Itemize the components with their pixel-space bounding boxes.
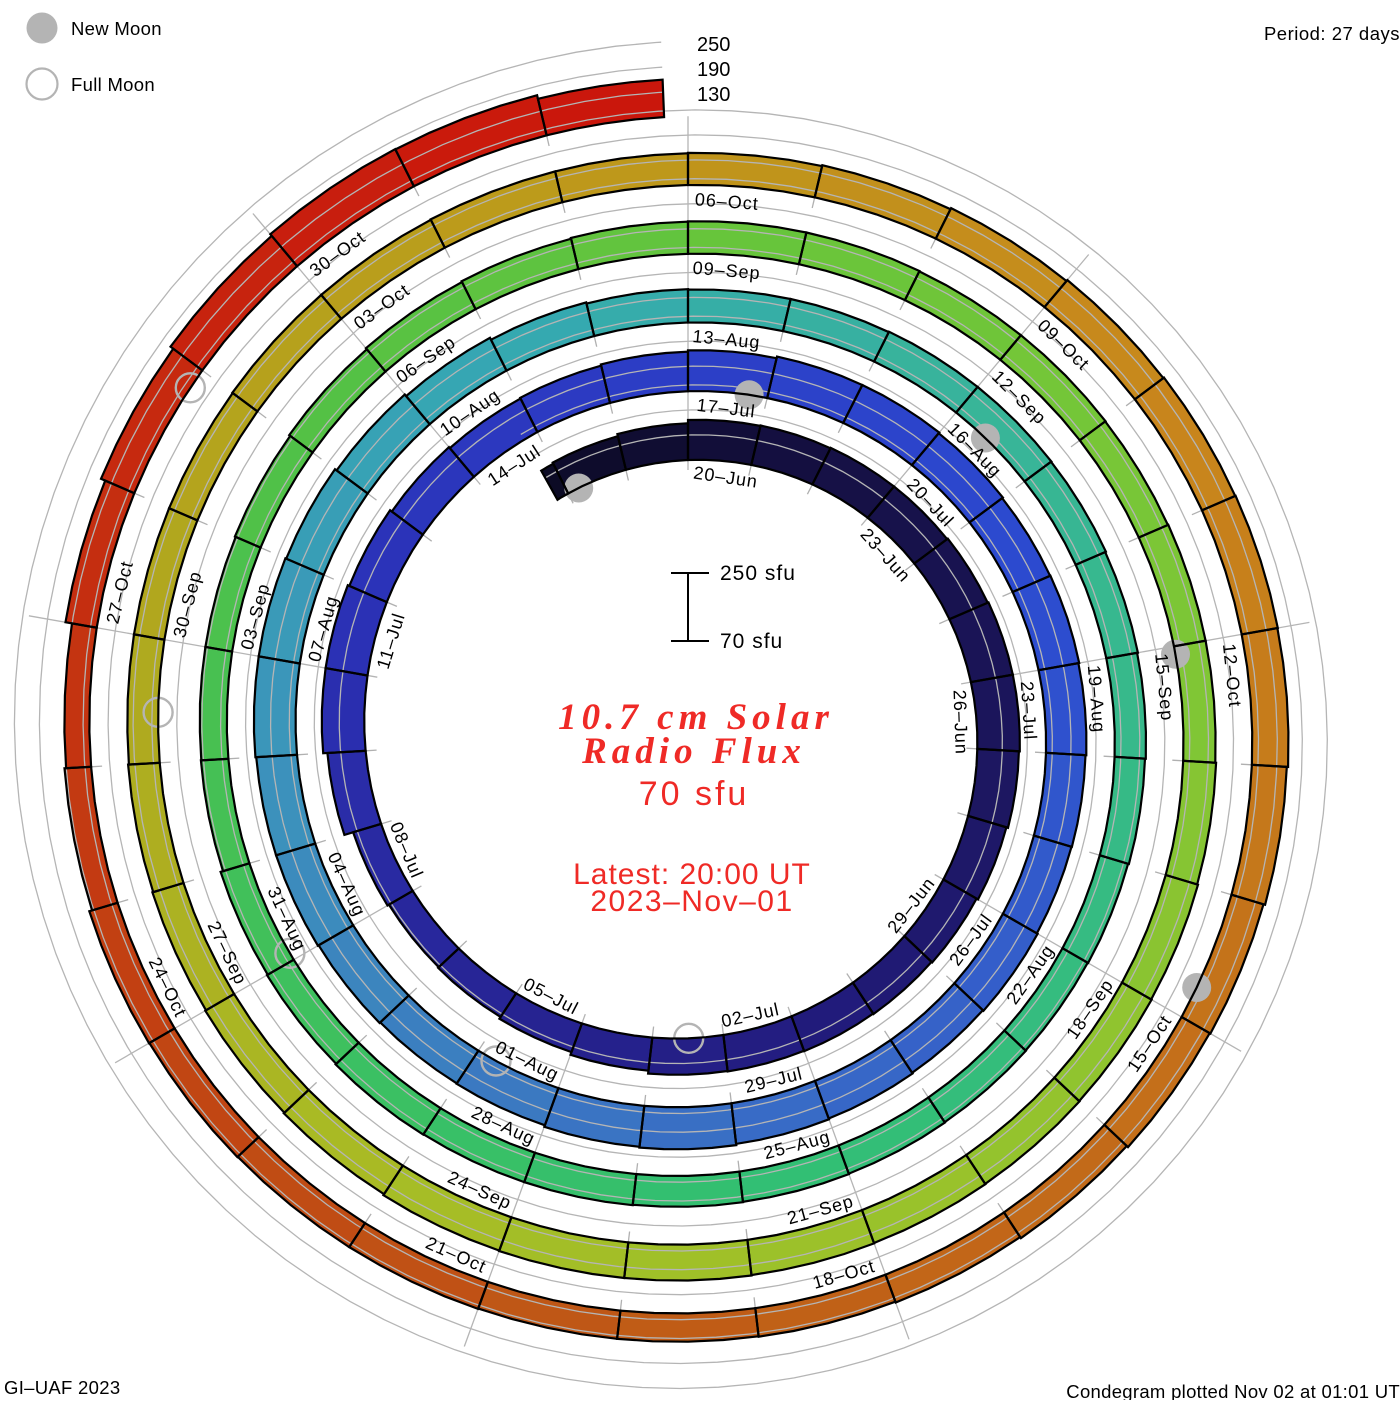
svg-text:130: 130: [697, 84, 730, 106]
svg-text:Full Moon: Full Moon: [71, 74, 155, 95]
svg-text:Period: 27 days: Period: 27 days: [1264, 23, 1400, 44]
svg-text:70 sfu: 70 sfu: [720, 630, 783, 653]
svg-text:70 sfu: 70 sfu: [639, 775, 750, 813]
svg-text:Condegram plotted Nov 02 at 01: Condegram plotted Nov 02 at 01:01 UT: [1066, 1381, 1400, 1400]
svg-text:250 sfu: 250 sfu: [720, 562, 796, 585]
svg-text:23–Jul: 23–Jul: [1017, 681, 1041, 741]
svg-text:26–Jun: 26–Jun: [949, 689, 971, 755]
svg-text:Radio Flux: Radio Flux: [581, 731, 806, 772]
svg-text:190: 190: [697, 59, 730, 81]
svg-text:2023–Nov–01: 2023–Nov–01: [590, 885, 793, 918]
svg-text:GI–UAF 2023: GI–UAF 2023: [4, 1377, 120, 1398]
svg-text:New Moon: New Moon: [71, 18, 162, 39]
svg-text:250: 250: [697, 34, 730, 56]
